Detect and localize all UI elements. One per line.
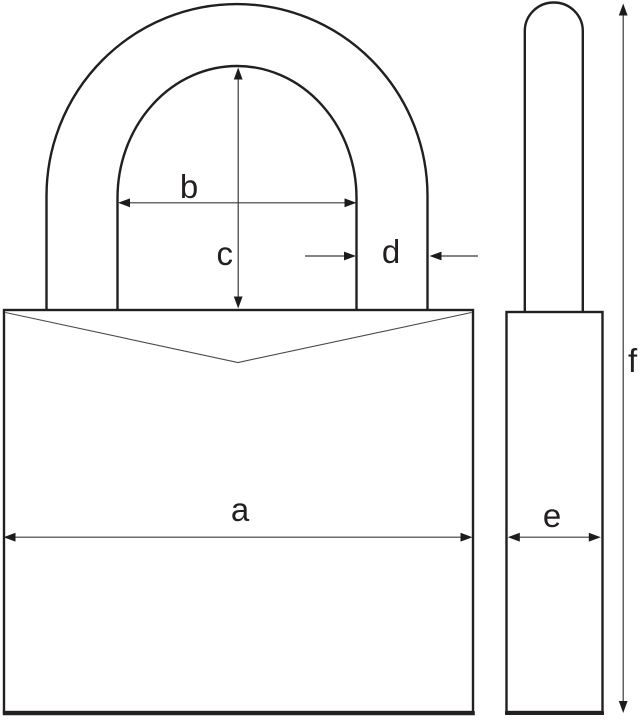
front-shackle-inner-outline xyxy=(118,66,357,311)
dimension-d-arrowhead-right xyxy=(430,252,442,261)
dimension-a-arrowhead-left xyxy=(4,533,16,542)
dimension-label-d: d xyxy=(382,233,400,270)
dimension-b-arrowhead-left xyxy=(118,198,130,207)
dimension-a: a xyxy=(4,491,473,542)
dimension-e-arrowhead-left xyxy=(508,533,520,542)
dimension-b-arrowhead-right xyxy=(345,198,357,207)
dimension-d-arrowhead-left xyxy=(344,252,356,261)
dimension-f-arrowhead-top xyxy=(619,4,628,16)
front-shackle-outer-outline xyxy=(47,4,428,311)
side-shackle-rod-outline xyxy=(525,3,583,314)
padlock-front-view xyxy=(3,4,475,713)
dimension-a-arrowhead-right xyxy=(461,533,473,542)
dimension-f: f xyxy=(619,4,638,714)
dimension-label-f: f xyxy=(628,342,638,379)
dimension-label-c: c xyxy=(217,235,234,272)
dimension-f-arrowhead-bottom xyxy=(619,701,628,713)
dimension-c-arrowhead-bottom xyxy=(234,297,243,309)
dimension-c-arrowhead-top xyxy=(234,68,243,80)
dimension-e: e xyxy=(508,497,601,542)
front-body-v-notch xyxy=(6,313,472,363)
dimension-d: d xyxy=(305,233,478,270)
diagram-canvas: a b c d e xyxy=(0,0,640,720)
padlock-dimension-diagram: a b c d e xyxy=(0,0,640,720)
padlock-side-view xyxy=(505,3,604,714)
dimension-e-arrowhead-right xyxy=(589,533,601,542)
dimension-b: b xyxy=(118,168,357,207)
dimension-label-e: e xyxy=(543,497,561,534)
dimension-label-b: b xyxy=(180,168,198,205)
dimension-label-a: a xyxy=(231,491,250,528)
dimension-c: c xyxy=(217,68,243,309)
